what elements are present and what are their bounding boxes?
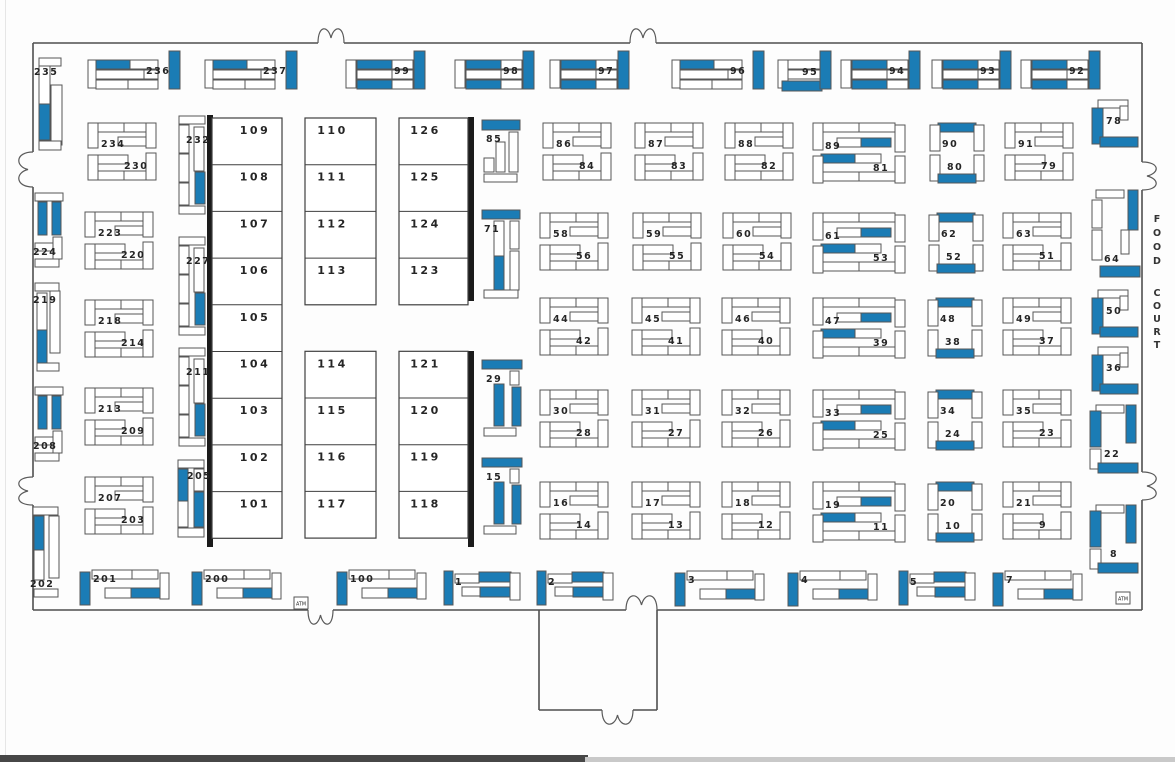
booth-table (632, 330, 642, 355)
booth-table (570, 404, 598, 413)
booth-table (85, 212, 95, 237)
booth-33-25[interactable]: 3325 (813, 390, 905, 450)
booth-113[interactable]: 113 (317, 264, 347, 277)
booth-114[interactable]: 114 (317, 357, 347, 370)
booth-table (727, 571, 753, 580)
label-text: 113 (317, 264, 347, 277)
booth-table (643, 261, 669, 270)
booth-table (479, 572, 511, 582)
booth-117[interactable]: 117 (317, 497, 347, 510)
door-arc (630, 29, 656, 43)
booth-table (392, 80, 413, 89)
booth-table (132, 570, 158, 579)
booth-table (1003, 213, 1013, 238)
booth-124[interactable]: 124 (410, 217, 440, 230)
booth-table (35, 283, 59, 291)
booth-label-209: 209 (121, 426, 145, 437)
booth-table (576, 261, 598, 270)
booth-31-27[interactable]: 3127 (632, 390, 700, 447)
booth-label-41: 41 (668, 336, 684, 347)
booth-78[interactable]: 78 (1092, 100, 1138, 147)
booth-table (1061, 243, 1071, 270)
booth-table (35, 453, 59, 461)
booth-label-54: 54 (759, 251, 775, 262)
booth-50[interactable]: 50 (1092, 290, 1138, 337)
booth-table (1013, 213, 1039, 222)
booth-label-15: 15 (486, 472, 502, 483)
booth-table (1061, 328, 1071, 355)
booth-232[interactable]: 232 (179, 116, 210, 214)
booth-table (821, 244, 855, 253)
booth-61-53[interactable]: 6153 (813, 213, 905, 273)
booth-22[interactable]: 22 (1090, 405, 1138, 473)
booth-112[interactable]: 112 (317, 217, 347, 230)
booth-table (929, 215, 939, 241)
booth-table (642, 390, 668, 399)
booth-32-26[interactable]: 3226 (722, 390, 790, 447)
booth-table (668, 482, 690, 491)
booth-label-92: 92 (1069, 66, 1085, 77)
booth-89-81[interactable]: 8981 (813, 123, 905, 183)
booth-126[interactable]: 126 (410, 124, 440, 137)
booth-label-208: 208 (33, 441, 57, 452)
booth-table (179, 386, 189, 414)
label-text: F (1154, 214, 1161, 225)
booth-table (1039, 261, 1061, 270)
booth-table (861, 405, 891, 414)
booth-100[interactable]: 100 (337, 570, 426, 605)
booth-label-47: 47 (825, 316, 841, 327)
booth-table (98, 123, 124, 132)
booth-4[interactable]: 4 (788, 571, 877, 606)
booth-105[interactable]: 105 (240, 311, 270, 324)
booth-table (937, 264, 975, 273)
booth-table (1013, 346, 1039, 355)
booth-48-38[interactable]: 4838 (928, 298, 982, 358)
booth-table (690, 512, 700, 539)
label-text: 120 (410, 404, 440, 417)
booth-table (1128, 190, 1138, 230)
booth-table (1015, 171, 1041, 180)
booth-table (662, 312, 690, 321)
booth-table (1039, 390, 1061, 399)
booth-table (690, 482, 700, 507)
booth-table (179, 206, 205, 214)
booth-label-38: 38 (945, 337, 961, 348)
booth-120[interactable]: 120 (410, 404, 440, 417)
booth-table (821, 513, 855, 522)
booth-table (572, 572, 604, 582)
booth-table (38, 396, 47, 429)
booth-219[interactable]: 219 (33, 283, 60, 371)
booth-47-39[interactable]: 4739 (813, 298, 905, 358)
label-text: ATM (296, 602, 306, 608)
booth-label-2: 2 (548, 577, 556, 588)
booth-table (33, 507, 58, 515)
booth-200[interactable]: 200 (192, 570, 281, 605)
booth-104[interactable]: 104 (240, 358, 270, 371)
booth-3[interactable]: 3 (675, 571, 764, 606)
booth-label-71: 71 (484, 224, 500, 235)
booth-table (1098, 563, 1138, 573)
booth-211[interactable]: 211 (179, 348, 210, 446)
booth-table (928, 484, 938, 510)
booth-92[interactable]: 92 (1021, 51, 1100, 89)
booth-234-230[interactable]: 234230 (88, 123, 156, 180)
booth-table (39, 104, 50, 140)
booth-label-4: 4 (801, 575, 809, 586)
booth-table (1032, 70, 1067, 79)
booth-236[interactable]: 236 (88, 51, 180, 89)
booth-table (781, 243, 791, 270)
booth-208[interactable]: 208 (33, 387, 63, 461)
booth-table (859, 213, 895, 222)
booth-table (633, 245, 643, 270)
booth-116[interactable]: 116 (317, 451, 347, 464)
booth-table (121, 212, 143, 221)
label-text: 123 (410, 264, 440, 277)
booth-111[interactable]: 111 (317, 171, 347, 184)
booth-label-83: 83 (671, 161, 687, 172)
booth-table (1041, 171, 1063, 180)
booth-64[interactable]: 64 (1092, 190, 1140, 277)
booth-table (632, 298, 642, 323)
booth-label-220: 220 (121, 250, 145, 261)
booth-1[interactable]: 1 (444, 571, 520, 605)
booth-table (85, 509, 95, 534)
booth-table (543, 123, 553, 148)
booth-label-23: 23 (1039, 428, 1055, 439)
booth-table (95, 300, 121, 309)
booth-table (553, 123, 579, 132)
booth-table (813, 331, 823, 358)
booth-45-41[interactable]: 4541 (632, 298, 700, 355)
booth-label-14: 14 (576, 520, 592, 531)
booth-table (346, 60, 356, 88)
booth-218-214[interactable]: 218214 (85, 300, 153, 357)
booth-label-45: 45 (645, 314, 661, 325)
booth-table (95, 348, 121, 357)
booth-label-85: 85 (486, 134, 502, 145)
booth-table (909, 51, 920, 89)
booth-table (1061, 512, 1071, 539)
booth-table (618, 51, 629, 89)
booth-30-28[interactable]: 3028 (540, 390, 608, 447)
booth-table (194, 127, 204, 171)
booth-table (895, 215, 905, 242)
booth-table (1061, 213, 1071, 238)
booth-44-42[interactable]: 4442 (540, 298, 608, 355)
booth-15[interactable]: 15 (482, 458, 522, 534)
booth-34-24[interactable]: 3424 (928, 390, 982, 450)
booth-table (1035, 137, 1063, 146)
booth-205[interactable]: 205 (178, 460, 211, 537)
booth-table (121, 436, 143, 445)
booth-99[interactable]: 99 (346, 51, 425, 89)
booth-table (642, 346, 668, 355)
booth-table (179, 348, 205, 356)
booth-table (700, 589, 726, 599)
booth-125[interactable]: 125 (410, 171, 440, 184)
booth-label-51: 51 (1039, 251, 1055, 262)
booth-table (95, 260, 121, 269)
booth-94[interactable]: 94 (841, 51, 920, 89)
booth-table (752, 496, 780, 505)
booth-35-23[interactable]: 3523 (1003, 390, 1071, 447)
booth-table (121, 260, 143, 269)
booth-table (861, 313, 891, 322)
booth-table (632, 514, 642, 539)
booth-108[interactable]: 108 (240, 171, 270, 184)
booth-101[interactable]: 101 (240, 498, 270, 511)
booth-table (642, 482, 668, 491)
booth-table (1033, 404, 1061, 413)
booth-label-19: 19 (825, 500, 841, 511)
booth-table (482, 458, 522, 467)
booth-207-203[interactable]: 207203 (85, 477, 153, 534)
booth-label-99: 99 (394, 66, 410, 77)
label-text: O (1153, 301, 1161, 312)
booth-table (35, 259, 59, 267)
booth-table (732, 482, 758, 491)
label-text: 109 (240, 124, 270, 137)
booth-5[interactable]: 5 (899, 571, 975, 605)
booth-table (1003, 422, 1013, 447)
booth-table (821, 421, 855, 430)
booth-label-55: 55 (669, 251, 685, 262)
booth-223-220[interactable]: 223220 (85, 212, 153, 269)
booth-table (693, 153, 703, 180)
booth-table (855, 244, 881, 253)
booth-table (598, 213, 608, 238)
booth-46-40[interactable]: 4640 (722, 298, 790, 355)
booth-102[interactable]: 102 (240, 451, 270, 464)
booth-224[interactable]: 224 (33, 193, 63, 267)
booth-table (494, 384, 504, 426)
booth-table (645, 171, 671, 180)
booth-label-17: 17 (645, 498, 661, 509)
booth-table (96, 60, 130, 69)
booth-97[interactable]: 97 (550, 51, 629, 89)
booth-label-21: 21 (1016, 498, 1032, 509)
booth-17-13[interactable]: 1713 (632, 482, 700, 539)
booth-table (813, 482, 823, 509)
booth-table (39, 141, 61, 150)
booth-table (859, 298, 895, 307)
booth-202[interactable]: 202 (30, 507, 59, 597)
booth-49-37[interactable]: 4937 (1003, 298, 1071, 355)
booth-table (732, 346, 758, 355)
booth-table (35, 387, 63, 395)
booth-109[interactable]: 109 (240, 124, 270, 137)
booth-label-218: 218 (98, 316, 122, 327)
booth-91-79[interactable]: 9179 (1005, 123, 1073, 180)
booth-table (733, 213, 759, 222)
booth-87-83[interactable]: 8783 (635, 123, 703, 180)
booth-85[interactable]: 85 (482, 120, 520, 182)
booth-table (124, 123, 146, 132)
booth-table (722, 422, 732, 447)
booth-table (88, 123, 98, 148)
booth-table (675, 573, 685, 606)
booth-106[interactable]: 106 (240, 264, 270, 277)
booth-table (1013, 298, 1039, 307)
booth-table (1126, 405, 1136, 443)
booth-table (1061, 420, 1071, 447)
booth-table (788, 573, 798, 606)
booth-label-31: 31 (645, 406, 661, 417)
booth-121[interactable]: 121 (410, 357, 440, 370)
booth-103[interactable]: 103 (240, 404, 270, 417)
booth-table (576, 390, 598, 399)
booth-93[interactable]: 93 (932, 51, 1011, 89)
booth-88-82[interactable]: 8882 (725, 123, 793, 180)
booth-table (643, 213, 669, 222)
booth-label-88: 88 (738, 139, 754, 150)
booth-table (1045, 571, 1071, 580)
booth-table (243, 588, 276, 598)
booth-table (1021, 60, 1031, 88)
booth-table (510, 469, 519, 483)
booth-label-62: 62 (941, 229, 957, 240)
booth-table (39, 58, 61, 66)
booth-2[interactable]: 2 (537, 571, 613, 605)
booth-table (550, 482, 576, 491)
booth-table (510, 573, 520, 600)
booth-59-55[interactable]: 5955 (633, 213, 701, 270)
booth-table (244, 570, 270, 579)
booth-96[interactable]: 96 (672, 51, 764, 89)
booth-table (550, 390, 576, 399)
booth-table (540, 298, 550, 323)
booth-table (735, 171, 761, 180)
booth-36[interactable]: 36 (1092, 347, 1138, 394)
label-text: ATM (1118, 597, 1128, 603)
booth-227[interactable]: 227 (179, 237, 210, 335)
booth-123[interactable]: 123 (410, 264, 440, 277)
booth-213-209[interactable]: 213209 (85, 388, 153, 445)
booth-237[interactable]: 237 (205, 51, 297, 89)
booth-21-9[interactable]: 219 (1003, 482, 1071, 539)
booth-table (1096, 190, 1124, 198)
booth-18-12[interactable]: 1812 (722, 482, 790, 539)
booth-label-30: 30 (553, 406, 569, 417)
booth-table (362, 588, 388, 598)
booth-20-10[interactable]: 2010 (928, 482, 982, 542)
booth-label-18: 18 (735, 498, 751, 509)
booth-table (758, 390, 780, 399)
booth-98[interactable]: 98 (455, 51, 534, 89)
booth-table (1039, 346, 1061, 355)
booth-table (598, 243, 608, 270)
booth-table (1044, 589, 1077, 599)
booth-table (357, 80, 392, 89)
booth-table (813, 213, 823, 240)
booth-table (823, 531, 859, 540)
scan-artifact (585, 757, 1175, 762)
booth-table (1032, 80, 1067, 89)
booth-table (573, 137, 601, 146)
booth-95[interactable]: 95 (778, 51, 831, 91)
booth-table (466, 60, 501, 69)
booth-115[interactable]: 115 (317, 404, 347, 417)
booth-table (85, 420, 95, 445)
booth-table (759, 261, 781, 270)
booth-60-54[interactable]: 6054 (723, 213, 791, 270)
booth-label-223: 223 (98, 228, 122, 239)
booth-16-14[interactable]: 1614 (540, 482, 608, 539)
booth-label-59: 59 (646, 229, 662, 240)
booth-table (895, 423, 905, 450)
booth-table (691, 243, 701, 270)
booth-block: 109108107106105104103102101 (212, 118, 282, 538)
booth-table (579, 123, 601, 132)
booth-table (124, 171, 146, 180)
booth-table (722, 482, 732, 507)
booth-62-52[interactable]: 6252 (929, 213, 983, 273)
booth-107[interactable]: 107 (240, 217, 270, 230)
booth-118[interactable]: 118 (410, 497, 440, 510)
booth-58-56[interactable]: 5856 (540, 213, 608, 270)
booth-table (95, 436, 121, 445)
booth-8[interactable]: 8 (1090, 505, 1138, 573)
booth-table (1039, 213, 1061, 222)
booth-table (1013, 261, 1039, 270)
booth-table (972, 392, 982, 418)
booth-7[interactable]: 7 (993, 571, 1082, 606)
booth-table (1063, 123, 1073, 148)
booth-table (414, 51, 425, 89)
booth-63-51[interactable]: 6351 (1003, 213, 1071, 270)
booth-table (780, 298, 790, 323)
booth-table (1005, 155, 1015, 180)
booth-table (1018, 589, 1044, 599)
booth-86-84[interactable]: 8684 (543, 123, 611, 180)
booth-table (576, 438, 598, 447)
booth-table (693, 123, 703, 148)
booth-119[interactable]: 119 (410, 451, 440, 464)
booth-table (523, 51, 534, 89)
booth-label-202: 202 (30, 579, 54, 590)
booth-table (357, 60, 392, 69)
booth-table (780, 482, 790, 507)
booth-table (85, 477, 95, 502)
booth-table (783, 123, 793, 148)
booth-table (178, 501, 188, 527)
booth-label-86: 86 (556, 139, 572, 150)
booth-235[interactable]: 235 (34, 58, 62, 150)
label-text: O (1153, 228, 1161, 239)
booth-table (1032, 60, 1067, 69)
booth-table (121, 525, 143, 534)
booth-201[interactable]: 201 (80, 570, 169, 605)
booth-71[interactable]: 71 (482, 210, 520, 298)
booth-table (550, 261, 576, 270)
booth-29[interactable]: 29 (482, 360, 522, 436)
booth-19-11[interactable]: 1911 (813, 482, 905, 542)
booth-table (690, 298, 700, 323)
booth-table (1100, 137, 1138, 147)
booth-label-44: 44 (553, 314, 569, 325)
booth-table (576, 213, 598, 222)
booth-table (943, 80, 978, 89)
booth-90-80[interactable]: 9080 (930, 123, 984, 183)
scan-artifact (0, 755, 588, 762)
booth-table (95, 525, 121, 534)
booth-110[interactable]: 110 (317, 124, 347, 137)
booth-table (645, 123, 671, 132)
booth-table (510, 221, 519, 249)
